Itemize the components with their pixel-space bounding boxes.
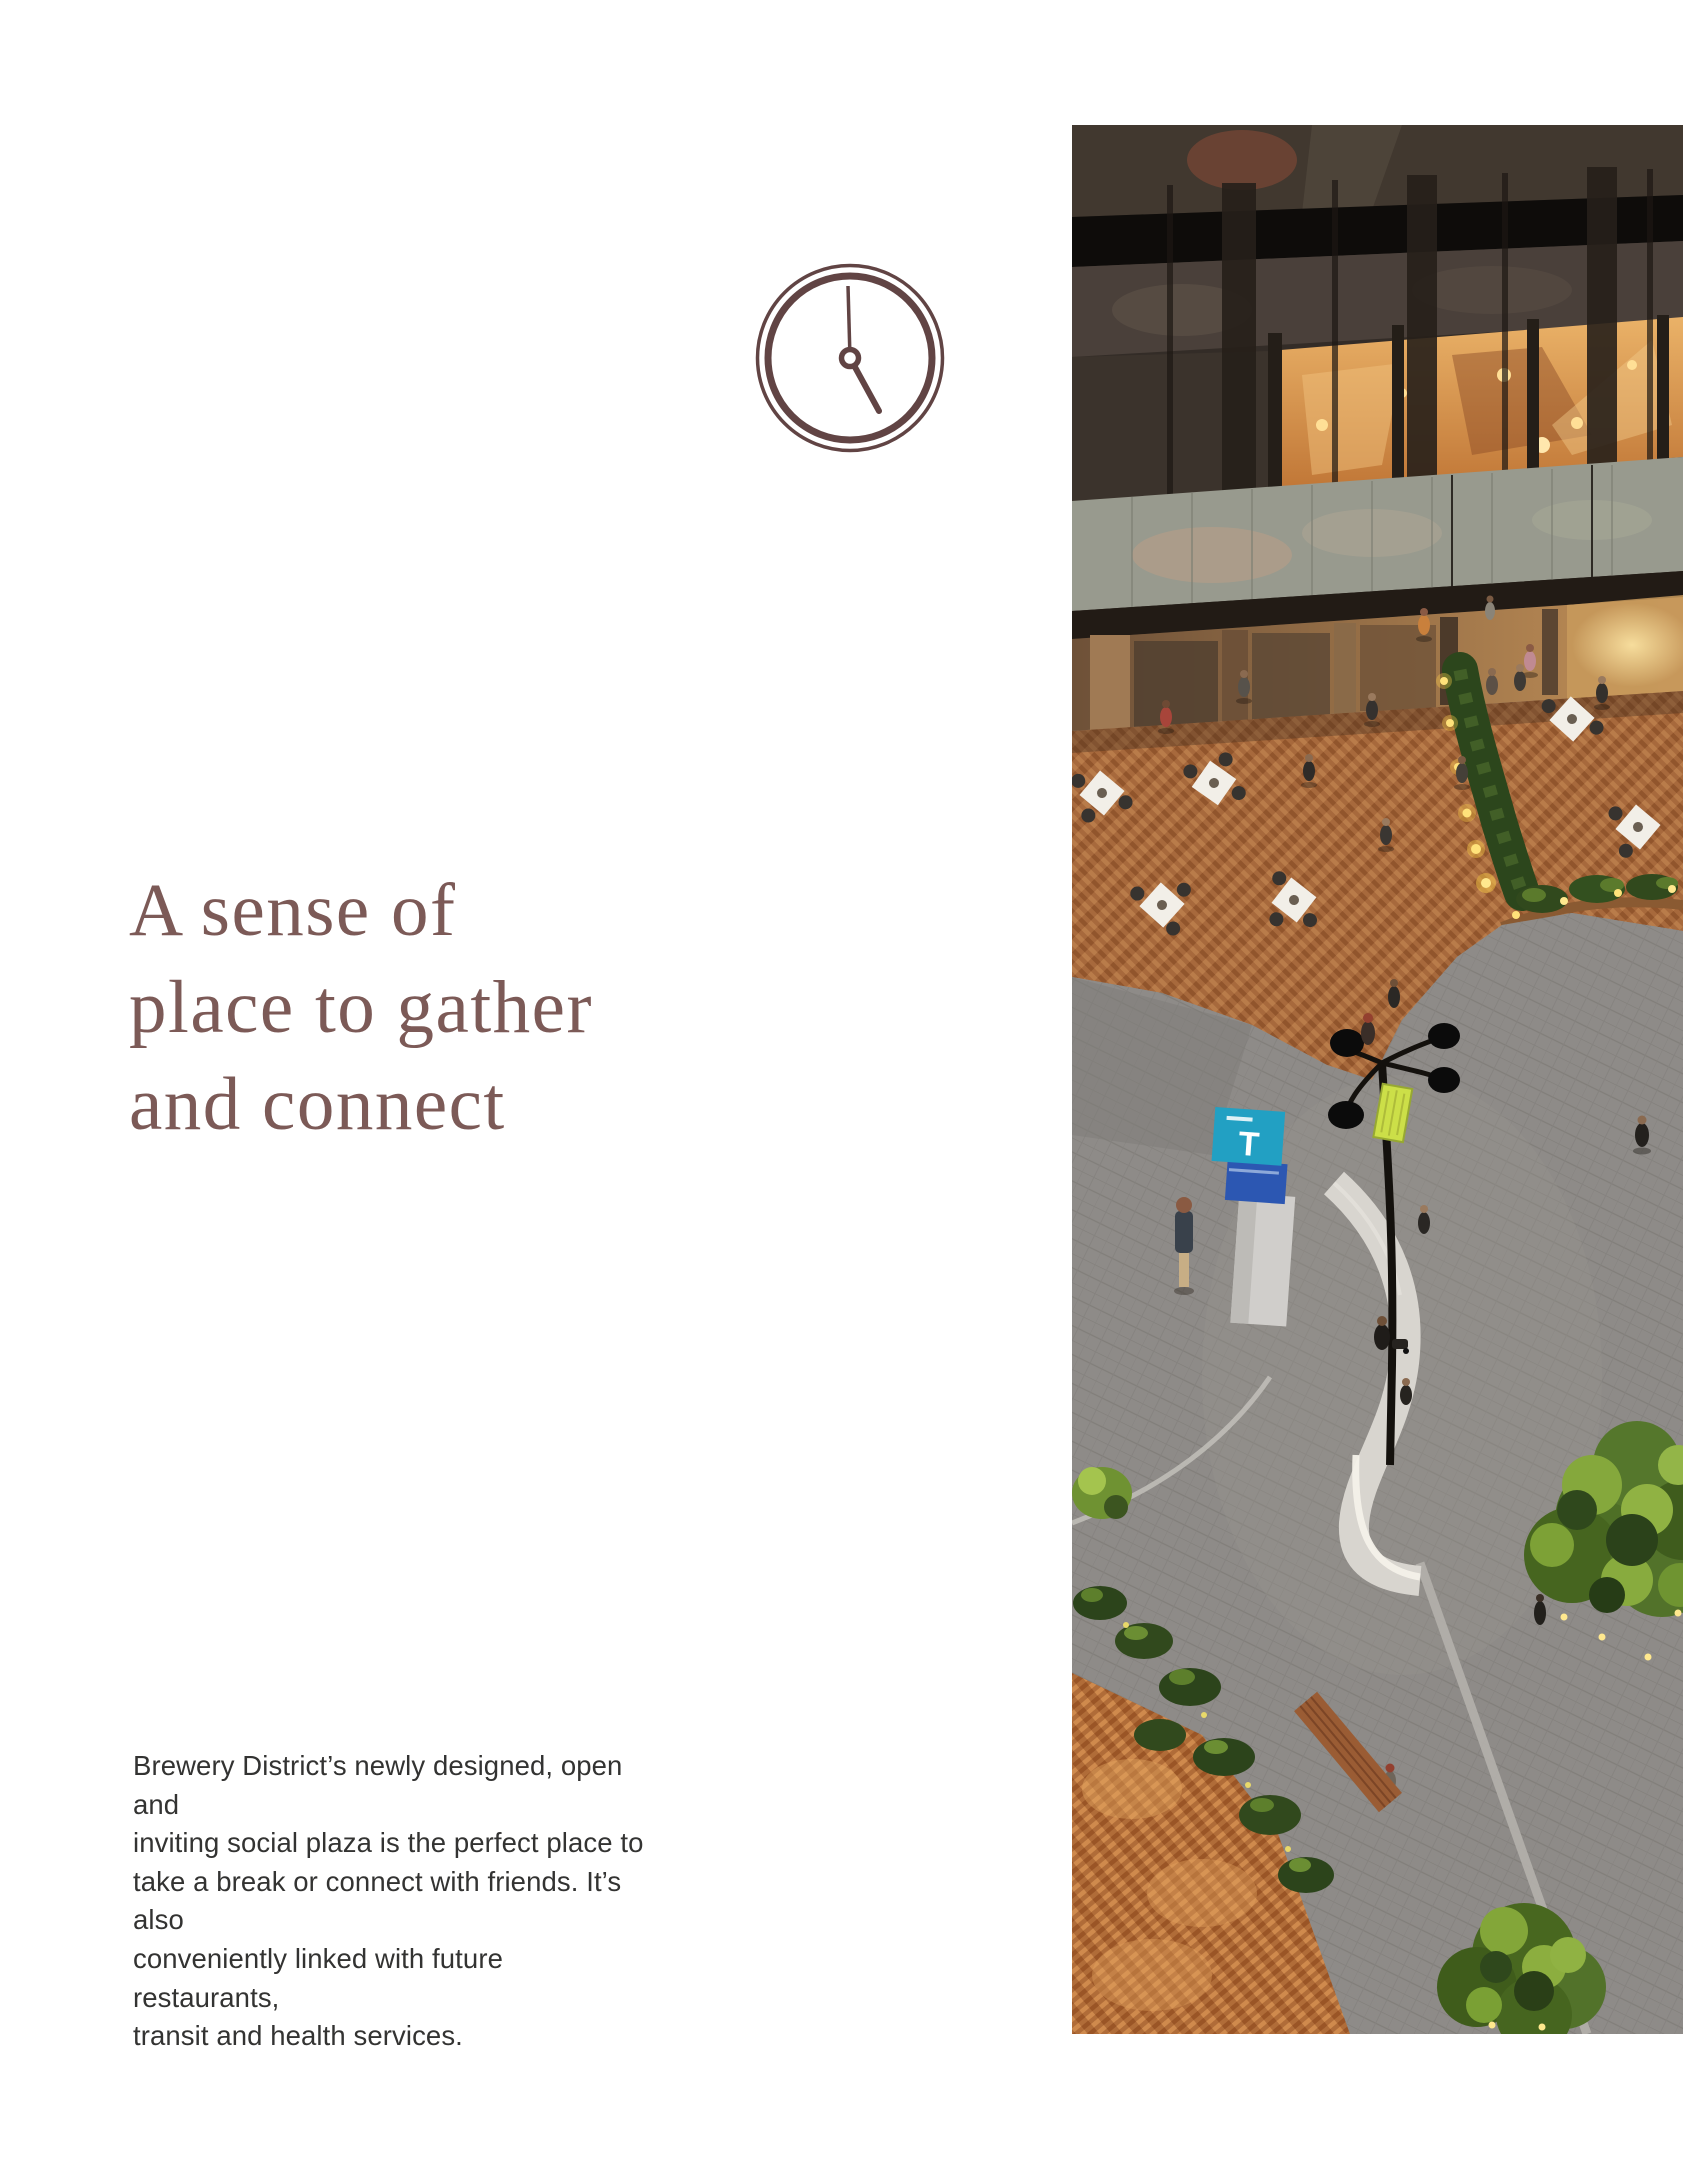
clock-icon (753, 261, 947, 455)
page-title: A sense of place to gather and connect (129, 862, 593, 1153)
heading-line-3: and connect (129, 1056, 593, 1153)
plaza-photo: T (1072, 125, 1683, 2034)
brochure-page: A sense of place to gather and connect B… (0, 0, 1683, 2160)
paragraph-line: Brewery District’s newly designed, open … (133, 1747, 653, 1824)
clock-center-dot (842, 350, 859, 367)
paragraph-line: inviting social plaza is the perfect pla… (133, 1824, 653, 1863)
paragraph-line: take a break or connect with friends. It… (133, 1863, 653, 1940)
heading-line-1: A sense of (129, 862, 593, 959)
heading-line-2: place to gather (129, 959, 593, 1056)
body-paragraph: Brewery District’s newly designed, open … (133, 1747, 653, 2056)
paragraph-line: conveniently linked with future restaura… (133, 1940, 653, 2017)
transit-sign-label: T (1237, 1125, 1261, 1164)
building-facade (1072, 125, 1683, 731)
window-reflection (1187, 130, 1297, 190)
kiosk-blue-panel (1225, 1160, 1288, 1204)
paragraph-line: transit and health services. (133, 2017, 653, 2056)
